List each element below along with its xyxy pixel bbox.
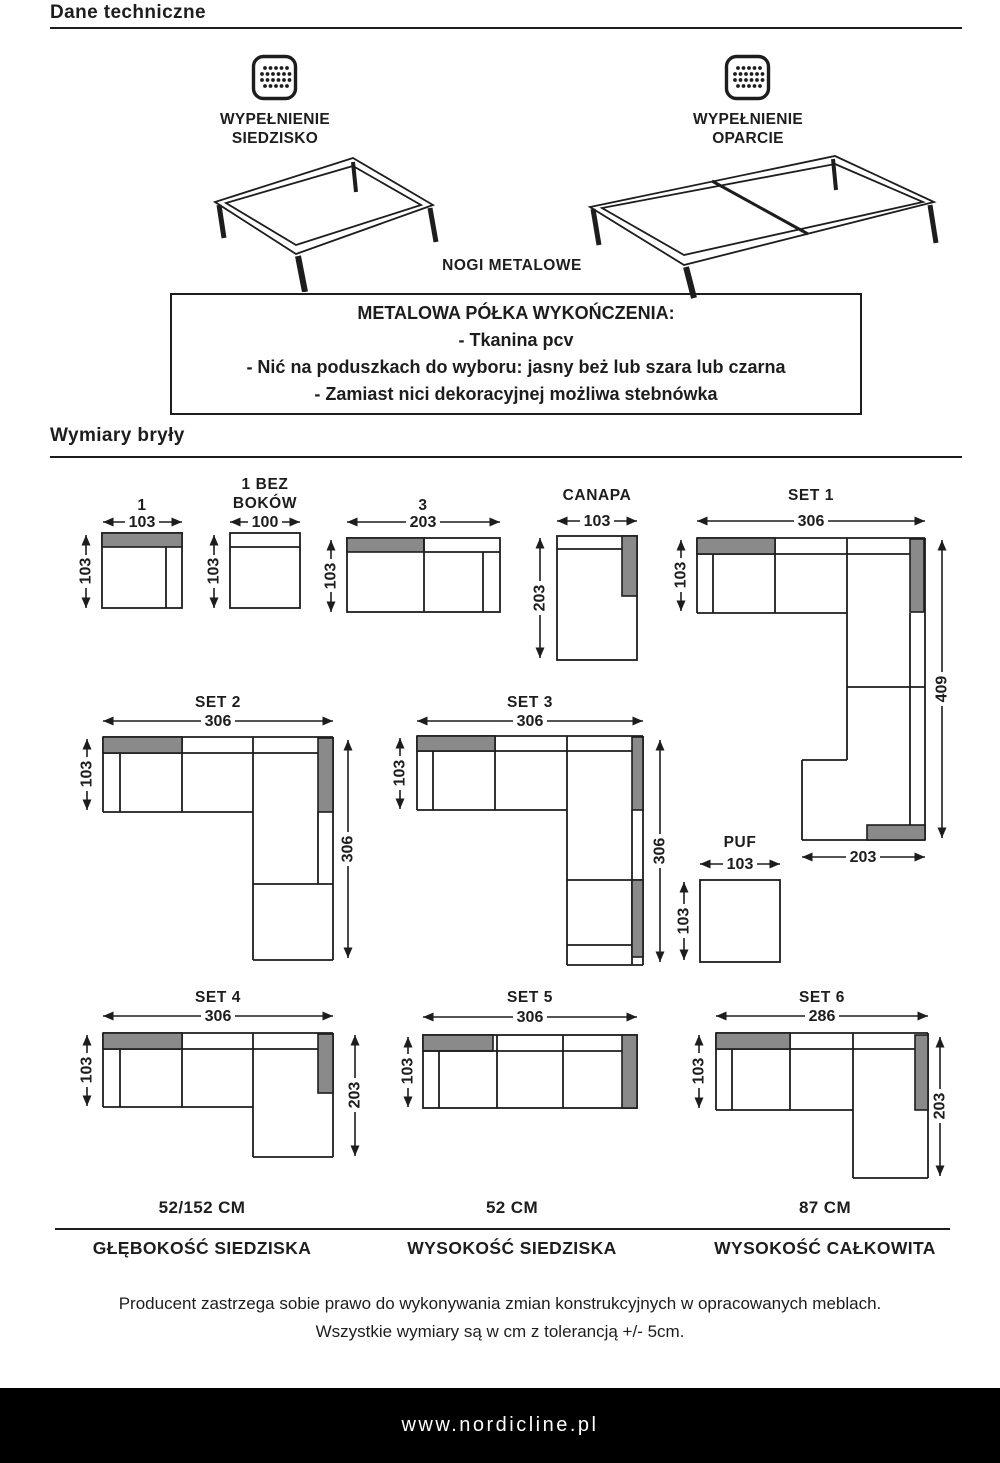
- footer-url: www.nordicline.pl: [0, 1388, 1000, 1463]
- dimensions-divider: [50, 456, 962, 458]
- diagram-puf: PUF 103 103: [676, 834, 781, 962]
- diagram-label: SET 2: [195, 694, 241, 711]
- diagram-module-1-bez-bokow: 1 BEZ BOKÓW 100 103: [206, 476, 301, 608]
- seat-height-value: 52 CM: [352, 1198, 672, 1218]
- total-height-value: 87 CM: [665, 1198, 985, 1218]
- width-value: 306: [517, 713, 544, 730]
- header-divider: [50, 27, 962, 29]
- height-value: 103: [79, 761, 96, 788]
- height-value: 103: [673, 562, 690, 589]
- width-value: 103: [727, 856, 754, 873]
- page-title: Dane techniczne: [50, 2, 206, 24]
- diagram-module-1: 1 103 103: [78, 497, 183, 608]
- back-filling-label: WYPEŁNIENIE OPARCIE: [638, 110, 858, 148]
- diagram-canapa: CANAPA 103 203: [532, 487, 638, 660]
- height-value: 103: [206, 558, 223, 585]
- width-value: 286: [809, 1008, 836, 1025]
- total-height-value: 203: [347, 1082, 364, 1109]
- diagram-label: CANAPA: [563, 487, 632, 504]
- finish-box-title: METALOWA PÓŁKA WYKOŃCZENIA:: [172, 300, 860, 327]
- diagram-set2: SET 2 306 103 306: [79, 694, 357, 960]
- seat-height-label: WYSOKOŚĆ SIEDZISKA: [352, 1238, 672, 1259]
- finish-box-item: - Tkanina pcv: [172, 327, 860, 354]
- diagram-label: 1: [137, 497, 146, 514]
- width-value: 103: [584, 513, 611, 530]
- diagram-label: PUF: [724, 834, 757, 851]
- diagram-label: BOKÓW: [233, 494, 297, 512]
- diagram-module-3: 3 203 103: [323, 497, 501, 612]
- seat-filling-icon: [251, 54, 298, 101]
- seat-filling-label-line1: WYPEŁNIENIE: [165, 110, 385, 129]
- total-height-value: 306: [340, 836, 357, 863]
- height-value: 103: [392, 760, 409, 787]
- height-value: 103: [691, 1058, 708, 1085]
- finish-info-box: METALOWA PÓŁKA WYKOŃCZENIA: - Tkanina pc…: [170, 293, 862, 415]
- diagram-label: SET 5: [507, 989, 553, 1006]
- diagram-label: 1 BEZ: [242, 476, 289, 493]
- width-value: 306: [205, 713, 232, 730]
- diagram-set3: SET 3 306 103 306: [392, 694, 669, 965]
- finish-box-item: - Zamiast nici dekoracyjnej możliwa steb…: [172, 381, 860, 408]
- diagram-set5: SET 5 306 103: [400, 989, 638, 1108]
- dimension-diagrams: 1 103 103 1 BEZ BOKÓW 100 103 3 203 1: [0, 460, 1000, 1188]
- width-value: 100: [252, 514, 279, 531]
- disclaimer-line2: Wszystkie wymiary są w cm z tolerancją +…: [0, 1322, 1000, 1342]
- height-value: 103: [323, 563, 340, 590]
- disclaimer-line1: Producent zastrzega sobie prawo do wykon…: [0, 1294, 1000, 1314]
- seat-filling-label-line2: SIEDZISKO: [165, 129, 385, 148]
- height-value: 103: [400, 1058, 417, 1085]
- seat-filling-label: WYPEŁNIENIE SIEDZISKO: [165, 110, 385, 148]
- diagram-set6: SET 6 286 103 203: [691, 989, 949, 1178]
- diagram-label: SET 1: [788, 487, 834, 504]
- width-value: 103: [129, 514, 156, 531]
- back-filling-label-line2: OPARCIE: [638, 129, 858, 148]
- total-height-value: 409: [934, 676, 951, 703]
- diagram-label: SET 6: [799, 989, 845, 1006]
- diagram-label: 3: [418, 497, 427, 514]
- diagram-set4: SET 4 306 103 203: [79, 989, 364, 1157]
- seat-depth-value: 52/152 CM: [42, 1198, 362, 1218]
- width-value: 203: [410, 514, 437, 531]
- chaise-width-value: 203: [850, 849, 877, 866]
- height-value: 103: [78, 558, 95, 585]
- diagram-label: SET 3: [507, 694, 553, 711]
- total-height-value: 306: [652, 838, 669, 865]
- metal-legs-label: NOGI METALOWE: [402, 257, 622, 275]
- total-height-value: 203: [932, 1093, 949, 1120]
- height-value: 103: [676, 908, 693, 935]
- footer-bar: www.nordicline.pl: [0, 1388, 1000, 1463]
- dimensions-section-title: Wymiary bryły: [50, 425, 185, 447]
- technical-data-sheet: Dane techniczne WYPEŁNIENIE SIEDZISKO WY…: [0, 0, 1000, 1463]
- height-value: 203: [532, 585, 549, 612]
- diagram-set1: SET 1 306 103 409 203: [673, 487, 951, 866]
- diagram-label: SET 4: [195, 989, 241, 1006]
- finish-box-item: - Nić na poduszkach do wyboru: jasny beż…: [172, 354, 860, 381]
- back-filling-icon: [724, 54, 771, 101]
- width-value: 306: [205, 1008, 232, 1025]
- back-filling-label-line1: WYPEŁNIENIE: [638, 110, 858, 129]
- total-height-label: WYSOKOŚĆ CAŁKOWITA: [665, 1238, 985, 1259]
- width-value: 306: [517, 1009, 544, 1026]
- back-frame-drawing: [582, 150, 957, 300]
- height-value: 103: [79, 1057, 96, 1084]
- seat-depth-label: GŁĘBOKOŚĆ SIEDZISKA: [42, 1238, 362, 1259]
- width-value: 306: [798, 513, 825, 530]
- stats-divider: [55, 1228, 950, 1230]
